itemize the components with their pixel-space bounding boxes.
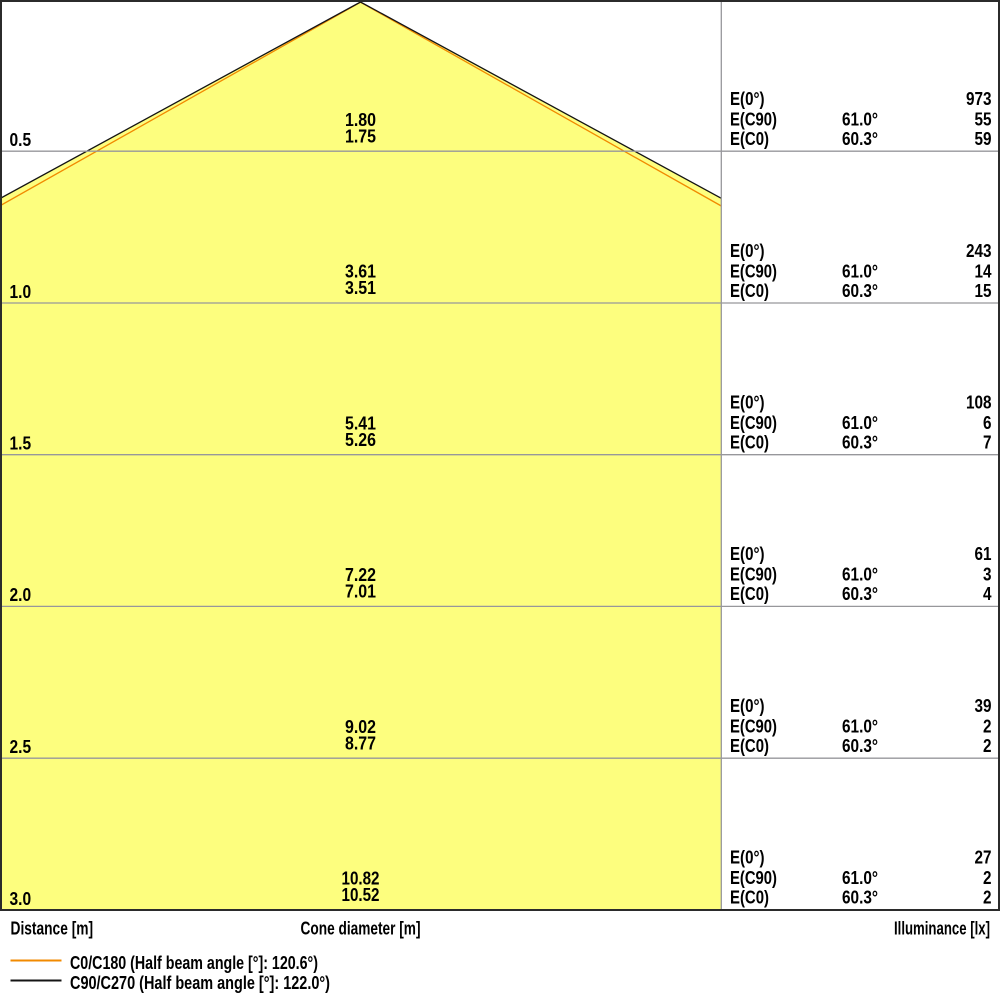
svg-text:E(0°): E(0°): [730, 848, 765, 868]
svg-text:39: 39: [975, 696, 992, 716]
svg-text:15: 15: [975, 281, 992, 301]
svg-text:E(C0): E(C0): [730, 433, 769, 453]
svg-text:60.3°: 60.3°: [842, 888, 878, 908]
svg-text:60.3°: 60.3°: [842, 129, 878, 149]
svg-text:E(C90): E(C90): [730, 717, 777, 737]
svg-text:E(C90): E(C90): [730, 868, 777, 888]
svg-text:E(0°): E(0°): [730, 89, 765, 109]
svg-text:E(C0): E(C0): [730, 888, 769, 908]
svg-text:3.0: 3.0: [10, 889, 32, 909]
svg-text:6: 6: [983, 413, 992, 433]
svg-text:2.0: 2.0: [10, 585, 32, 605]
svg-text:14: 14: [975, 261, 992, 281]
svg-text:E(C90): E(C90): [730, 110, 777, 130]
svg-text:60.3°: 60.3°: [842, 584, 878, 604]
svg-text:Cone diameter [m]: Cone diameter [m]: [301, 919, 421, 939]
svg-text:61.0°: 61.0°: [842, 868, 878, 888]
svg-text:7.01: 7.01: [345, 582, 376, 602]
svg-text:60.3°: 60.3°: [842, 281, 878, 301]
svg-text:61.0°: 61.0°: [842, 110, 878, 130]
svg-text:Illuminance [lx]: Illuminance [lx]: [894, 919, 990, 939]
svg-text:1.0: 1.0: [10, 282, 32, 302]
svg-text:59: 59: [975, 129, 992, 149]
svg-text:E(C0): E(C0): [730, 584, 769, 604]
svg-text:3: 3: [983, 565, 992, 585]
svg-text:2: 2: [983, 736, 992, 756]
svg-text:4: 4: [983, 584, 992, 604]
svg-text:2.5: 2.5: [10, 737, 32, 757]
svg-text:1.5: 1.5: [10, 434, 32, 454]
svg-text:108: 108: [966, 393, 992, 413]
svg-text:2: 2: [983, 717, 992, 737]
svg-text:8.77: 8.77: [345, 733, 376, 753]
svg-text:E(C0): E(C0): [730, 129, 769, 149]
svg-text:C90/C270 (Half beam angle [°]:: C90/C270 (Half beam angle [°]: 122.0°): [70, 973, 330, 993]
svg-text:973: 973: [966, 89, 992, 109]
svg-text:7: 7: [983, 433, 992, 453]
svg-text:61.0°: 61.0°: [842, 261, 878, 281]
svg-text:E(C0): E(C0): [730, 281, 769, 301]
svg-text:3.51: 3.51: [345, 278, 376, 298]
svg-text:2: 2: [983, 888, 992, 908]
svg-text:E(C90): E(C90): [730, 261, 777, 281]
svg-text:E(C90): E(C90): [730, 565, 777, 585]
svg-text:C0/C180 (Half beam angle [°]:: C0/C180 (Half beam angle [°]: 120.6°): [70, 953, 318, 973]
svg-text:2: 2: [983, 868, 992, 888]
svg-text:0.5: 0.5: [10, 130, 32, 150]
svg-text:61: 61: [975, 544, 992, 564]
svg-text:E(0°): E(0°): [730, 696, 765, 716]
svg-text:10.52: 10.52: [342, 885, 380, 905]
svg-text:61.0°: 61.0°: [842, 565, 878, 585]
svg-text:55: 55: [975, 110, 992, 130]
svg-text:27: 27: [975, 848, 992, 868]
svg-text:60.3°: 60.3°: [842, 736, 878, 756]
svg-text:E(C0): E(C0): [730, 736, 769, 756]
svg-text:1.75: 1.75: [345, 126, 376, 146]
svg-text:243: 243: [966, 241, 992, 261]
svg-text:E(0°): E(0°): [730, 393, 765, 413]
svg-text:61.0°: 61.0°: [842, 717, 878, 737]
svg-text:5.26: 5.26: [345, 430, 376, 450]
svg-text:E(0°): E(0°): [730, 544, 765, 564]
svg-text:E(C90): E(C90): [730, 413, 777, 433]
svg-text:Distance [m]: Distance [m]: [11, 919, 94, 939]
svg-text:60.3°: 60.3°: [842, 433, 878, 453]
svg-text:E(0°): E(0°): [730, 241, 765, 261]
svg-text:61.0°: 61.0°: [842, 413, 878, 433]
